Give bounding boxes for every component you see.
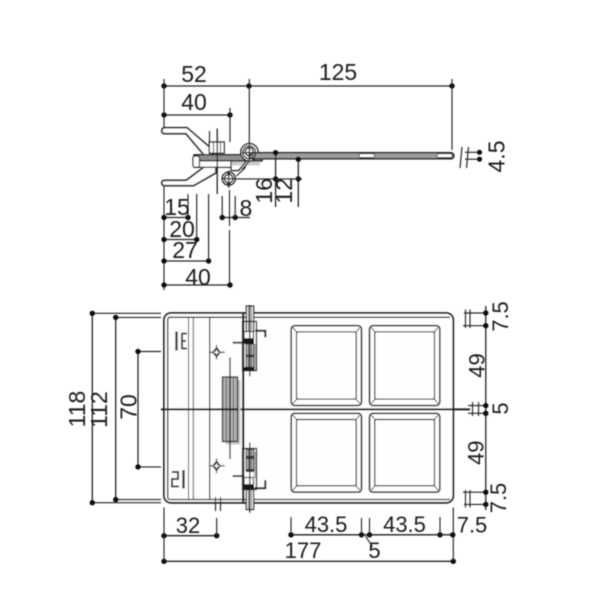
svg-text:52: 52 [181, 61, 207, 87]
svg-text:40: 40 [185, 264, 211, 290]
svg-text:32: 32 [176, 513, 200, 538]
svg-text:5: 5 [488, 402, 513, 414]
svg-text:125: 125 [319, 59, 357, 85]
svg-text:49: 49 [465, 353, 490, 377]
svg-text:5: 5 [368, 538, 380, 563]
svg-text:27: 27 [172, 237, 198, 263]
svg-text:7.5: 7.5 [486, 483, 511, 514]
svg-text:70: 70 [116, 394, 142, 420]
svg-text:4.5: 4.5 [484, 141, 510, 173]
svg-text:40: 40 [181, 89, 207, 115]
svg-text:7.5: 7.5 [488, 301, 513, 332]
svg-text:12: 12 [271, 178, 297, 204]
svg-text:177: 177 [285, 538, 322, 563]
svg-text:112: 112 [86, 391, 112, 428]
svg-text:7.5: 7.5 [457, 513, 488, 538]
svg-text:43.5: 43.5 [305, 512, 348, 537]
svg-text:43.5: 43.5 [383, 512, 426, 537]
svg-text:49: 49 [464, 440, 489, 464]
svg-text:8: 8 [240, 195, 253, 221]
